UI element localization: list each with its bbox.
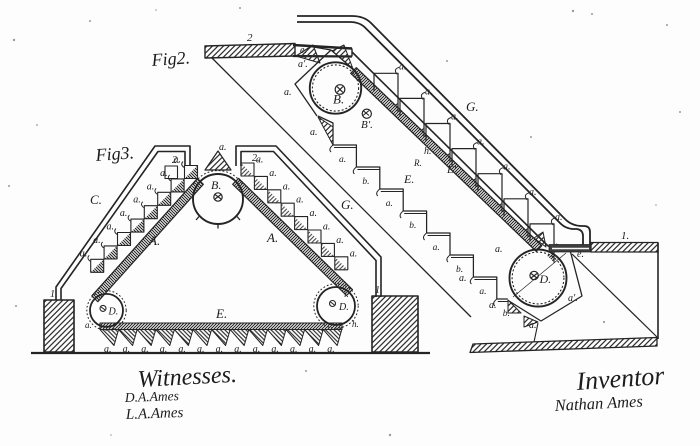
svg-text:C.: C.: [90, 192, 102, 207]
svg-text:a′.: a′.: [568, 293, 578, 304]
svg-text:i.: i.: [344, 289, 349, 299]
svg-text:1.: 1.: [50, 289, 58, 300]
svg-text:a.: a.: [459, 273, 467, 284]
svg-text:G.: G.: [341, 197, 354, 212]
svg-text:1.: 1.: [375, 285, 383, 296]
svg-text:a.: a.: [296, 195, 304, 206]
svg-text:a.: a.: [433, 243, 440, 253]
svg-text:a.: a.: [386, 199, 393, 209]
svg-text:a.: a.: [489, 300, 497, 311]
svg-text:E.: E.: [215, 306, 227, 321]
svg-text:a.: a.: [339, 155, 346, 165]
svg-text:R.: R.: [413, 158, 422, 168]
svg-text:a.: a.: [93, 235, 101, 246]
svg-text:D.: D.: [338, 302, 349, 313]
svg-text:E′.: E′.: [446, 164, 459, 176]
svg-text:a.: a.: [107, 222, 115, 233]
svg-text:a′.: a′.: [298, 59, 308, 70]
svg-text:b.: b.: [362, 177, 369, 187]
svg-text:B′.: B′.: [361, 119, 373, 131]
svg-text:Nathan Ames: Nathan Ames: [553, 391, 643, 415]
svg-text:a.: a.: [336, 235, 344, 246]
svg-text:Fig3.: Fig3.: [94, 142, 135, 165]
svg-text:a.: a.: [529, 187, 537, 198]
svg-text:a.: a.: [269, 168, 277, 179]
svg-text:a.: a.: [451, 112, 459, 123]
svg-text:Inventor: Inventor: [574, 361, 666, 396]
svg-text:a.: a.: [555, 212, 563, 223]
svg-text:e.: e.: [300, 45, 307, 56]
svg-text:a.: a.: [310, 208, 318, 219]
svg-text:G.: G.: [466, 99, 479, 114]
svg-text:a.: a.: [283, 181, 291, 192]
svg-text:a.: a.: [133, 195, 141, 206]
svg-text:a.: a.: [503, 162, 511, 173]
svg-text:a.: a.: [160, 168, 168, 179]
svg-text:a.: a.: [323, 222, 331, 233]
svg-text:Fig2.: Fig2.: [150, 47, 191, 70]
svg-text:a.: a.: [120, 208, 128, 219]
svg-text:a.: a.: [80, 248, 88, 259]
svg-text:A.: A.: [266, 230, 278, 245]
svg-text:a.: a.: [425, 86, 433, 97]
svg-text:a.: a.: [85, 320, 92, 330]
svg-text:a.: a.: [479, 287, 486, 297]
svg-text:a.: a.: [495, 244, 503, 255]
svg-text:L.A.Ames: L.A.Ames: [125, 405, 184, 423]
svg-text:B.: B.: [211, 178, 221, 192]
svg-text:a.: a.: [529, 320, 537, 331]
svg-text:a.: a.: [310, 127, 318, 138]
svg-text:2.: 2.: [252, 153, 260, 164]
svg-text:a.: a.: [219, 142, 227, 153]
svg-text:D.: D.: [108, 306, 119, 317]
svg-text:a.: a.: [350, 248, 358, 259]
svg-text:a.: a.: [477, 137, 485, 148]
svg-text:a.: a.: [284, 87, 292, 98]
svg-text:B.: B.: [333, 92, 344, 107]
svg-text:A.: A.: [148, 233, 160, 248]
svg-text:E.: E.: [403, 172, 414, 186]
svg-text:a.: a.: [399, 61, 407, 72]
svg-text:D.A.Ames: D.A.Ames: [124, 388, 179, 405]
svg-text:h.: h.: [352, 319, 359, 329]
svg-text:h.: h.: [424, 146, 432, 157]
svg-text:2: 2: [247, 32, 253, 44]
svg-text:a.: a.: [147, 181, 155, 192]
svg-text:1.: 1.: [621, 230, 629, 242]
svg-text:b.: b.: [409, 221, 416, 231]
svg-text:2.: 2.: [172, 155, 180, 166]
